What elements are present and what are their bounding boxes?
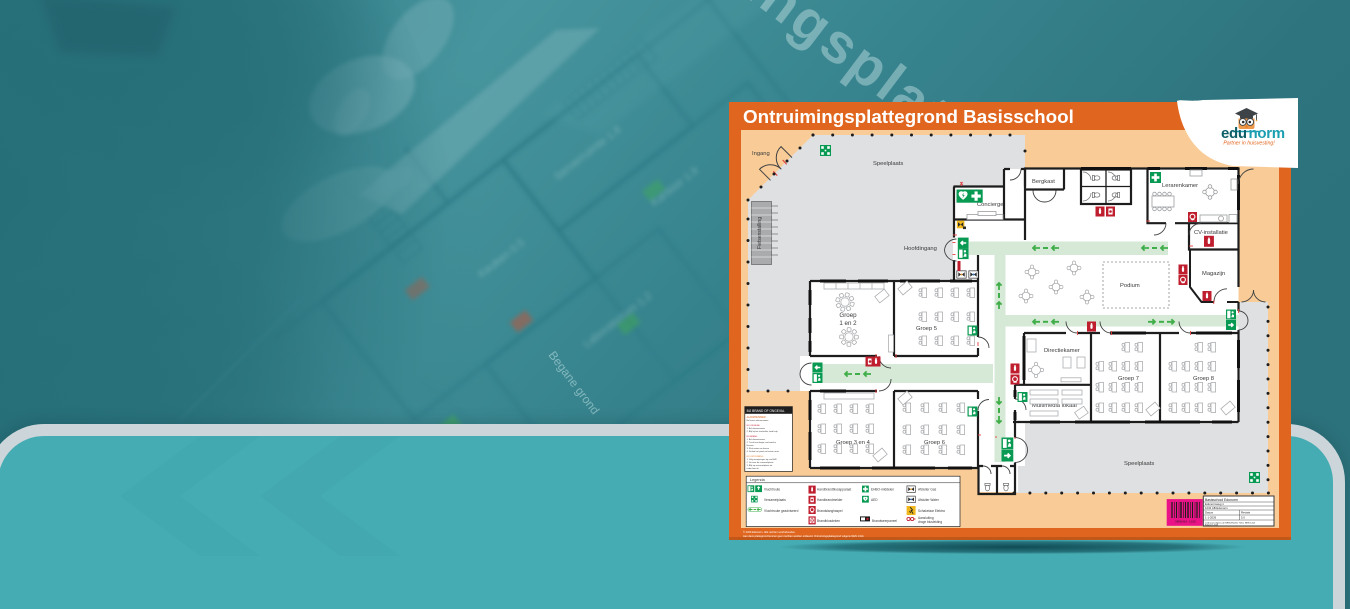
svg-text:Datum: Datum (1205, 511, 1214, 515)
svg-text:1-1-2026: 1-1-2026 (1205, 515, 1217, 519)
svg-text:Brandblusdeken: Brandblusdeken (817, 519, 840, 523)
svg-text:norm: norm (1249, 125, 1285, 142)
svg-text:Verzamelplaats: Verzamelplaats (764, 498, 786, 502)
svg-text:AED: AED (871, 498, 878, 502)
svg-text:Magazijn: Magazijn (1202, 271, 1225, 277)
svg-text:Afsluiter Water: Afsluiter Water (918, 498, 940, 502)
svg-text:Directiekamer: Directiekamer (1044, 348, 1080, 354)
svg-text:4. Verlaat het pand via korts: 4. Verlaat het pand via kortste route (747, 450, 780, 453)
svg-text:Groep 5: Groep 5 (916, 326, 937, 332)
svg-text:Handbrandblusapparaat: Handbrandblusapparaat (817, 488, 851, 492)
svg-text:Legenda: Legenda (750, 478, 766, 482)
svg-text:Groep: Groep (839, 312, 857, 319)
svg-text:blussen: blussen (747, 445, 754, 447)
svg-text:Groep 8: Groep 8 (1193, 376, 1214, 382)
svg-text:5.0: 5.0 (1241, 515, 1245, 519)
svg-text:1234 AB Edunorm: 1234 AB Edunorm (1205, 506, 1228, 510)
svg-text:Brandslanghaspel: Brandslanghaspel (817, 509, 843, 513)
svg-text:BIJ BRAND OF ONGEVAL: BIJ BRAND OF ONGEVAL (747, 409, 785, 413)
svg-text:3. Blijf op verzamelplaats to: 3. Blijf op verzamelplaats tot (747, 464, 773, 467)
svg-text:Concierge: Concierge (977, 202, 1003, 208)
svg-text:EHBO-middelen: EHBO-middelen (871, 488, 894, 492)
svg-text:1. Volg aanwijzingen op van B: 1. Volg aanwijzingen op van BHV (747, 459, 778, 461)
svg-text:Fietsenstalling: Fietsenstalling (757, 217, 763, 249)
svg-text:Lerarenkamer: Lerarenkamer (1162, 183, 1198, 189)
svg-text:Hoofdingang: Hoofdingang (904, 246, 937, 252)
svg-text:BIJ ONGEVAL: BIJ ONGEVAL (747, 424, 761, 427)
svg-text:Handbrandmelder: Handbrandmelder (817, 498, 843, 502)
svg-text:Groep 7: Groep 7 (1118, 376, 1139, 382)
svg-text:1. Bel alarmnummer: 1. Bel alarmnummer (747, 438, 766, 441)
svg-text:NEN1414 · 1:100: NEN1414 · 1:100 (1175, 520, 1196, 524)
svg-text:Afsluiter Gas: Afsluiter Gas (918, 488, 937, 492)
svg-text:edu: edu (1221, 125, 1247, 142)
svg-text:droge blusleiding: droge blusleiding (918, 520, 942, 524)
svg-text:Revisie: Revisie (1241, 511, 1251, 515)
svg-text:BIJ BRAND: BIJ BRAND (747, 435, 758, 438)
svg-text:1 en 2: 1 en 2 (839, 320, 857, 327)
svg-text:ALARMNUMMER: ALARMNUMMER (747, 416, 766, 419)
svg-text:CV-installatie: CV-installatie (1194, 230, 1228, 236)
svg-text:Speelplaats: Speelplaats (873, 161, 903, 167)
svg-text:Vluchtroute geadviseerd: Vluchtroute geadviseerd (764, 509, 799, 513)
svg-text:1. Bel alarmnummer: 1. Bel alarmnummer (747, 427, 766, 430)
svg-text:Ingang: Ingang (752, 151, 770, 157)
svg-text:Basisschool Edunorm: Basisschool Edunorm (1205, 498, 1238, 502)
svg-text:Schakelaar Elektra: Schakelaar Elektra (918, 509, 945, 513)
svg-text:3. Sluit ramen en deuren: 3. Sluit ramen en deuren (747, 447, 769, 450)
svg-text:BIJ ONTRUIMING: BIJ ONTRUIMING (747, 456, 764, 458)
svg-text:Podium: Podium (1120, 283, 1140, 289)
svg-text:2. Tracht met begin van brand: 2. Tracht met begin van brand te (747, 441, 777, 444)
svg-text:Edunorm 2026: Edunorm 2026 (1205, 525, 1219, 527)
svg-text:2. Ga naar de verzamelplaats: 2. Ga naar de verzamelplaats (747, 461, 774, 464)
svg-text:Brandweerpaneel: Brandweerpaneel (872, 519, 897, 523)
svg-text:Partner in huisvesting!: Partner in huisvesting! (1223, 141, 1275, 147)
svg-text:Speelplaats: Speelplaats (1124, 461, 1154, 467)
svg-text:nader bericht: nader bericht (747, 467, 759, 470)
svg-text:Vluchtroute: Vluchtroute (764, 488, 780, 492)
svg-text:Bergkast: Bergkast (1032, 179, 1055, 185)
svg-text:Bel intern alarmnummer: Bel intern alarmnummer (747, 419, 769, 422)
svg-text:2. Blijf bij het slachtoffer,: 2. Blijf bij het slachtoffer, bied hulp (747, 430, 779, 433)
